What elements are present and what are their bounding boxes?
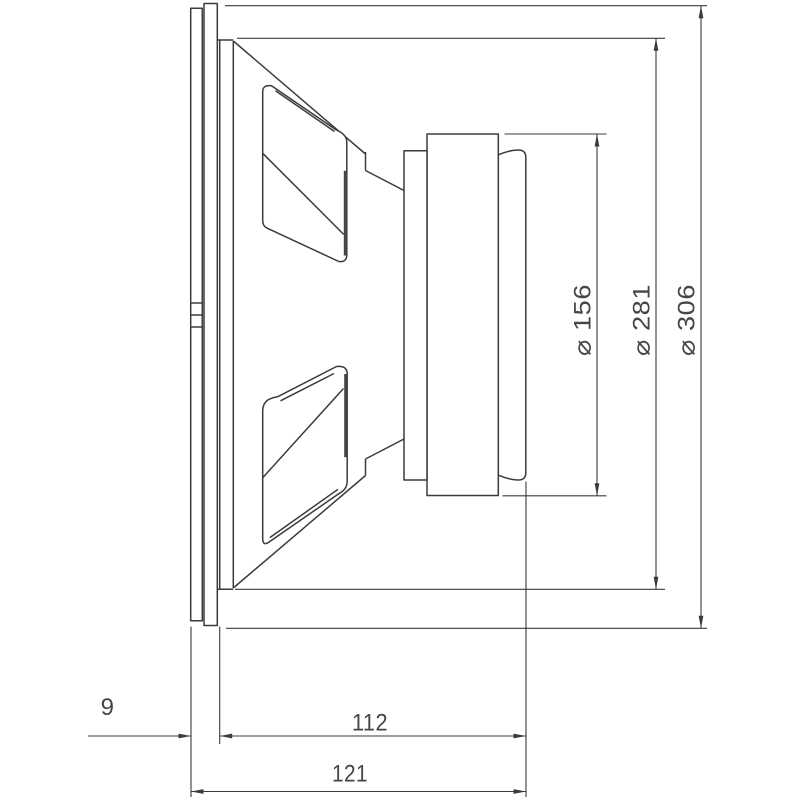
- vent-lower-wall-bar: [344, 374, 347, 456]
- cone-neck-upper-slant: [366, 171, 405, 191]
- dim-label-dia-306: ⌀ 306: [674, 284, 701, 356]
- arrow-dia306-down: [699, 616, 704, 629]
- vent-window-lower: [263, 366, 348, 543]
- speaker-outline: [191, 4, 526, 626]
- drawing-canvas: ⌀ 156 ⌀ 281 ⌀ 306 9 112 121: [0, 0, 800, 800]
- dimension-lines: [88, 6, 707, 797]
- magnet-plate: [427, 134, 498, 496]
- dim-label-9: 9: [101, 694, 115, 721]
- arrow-dia281-down: [654, 577, 659, 590]
- vent-window-upper: [263, 86, 347, 262]
- arrow-dia156-up: [595, 134, 600, 147]
- speaker-side-view-drawing: ⌀ 156 ⌀ 281 ⌀ 306 9 112 121: [0, 0, 800, 800]
- dim-label-dia-281: ⌀ 281: [629, 284, 656, 356]
- arrow-121-right: [514, 789, 527, 794]
- arrow-112-left: [220, 734, 233, 739]
- back-plate: [498, 150, 526, 480]
- arrow-112-right: [514, 734, 527, 739]
- dim-label-121: 121: [332, 761, 368, 788]
- arrow-9-right: [179, 734, 192, 739]
- arrow-dia306-up: [699, 6, 704, 19]
- arrow-dia281-up: [654, 38, 659, 51]
- mounting-flange-strip: [204, 4, 217, 626]
- dim-label-dia-156: ⌀ 156: [570, 284, 597, 356]
- vent-upper-wall-bar: [344, 172, 347, 256]
- dim-label-112: 112: [352, 710, 388, 737]
- arrow-dia156-down: [595, 483, 600, 496]
- front-plate: [404, 151, 427, 480]
- vent-wall-shading: [344, 172, 347, 456]
- arrow-121-left: [191, 789, 204, 794]
- cone-neck-lower-slant: [366, 439, 405, 459]
